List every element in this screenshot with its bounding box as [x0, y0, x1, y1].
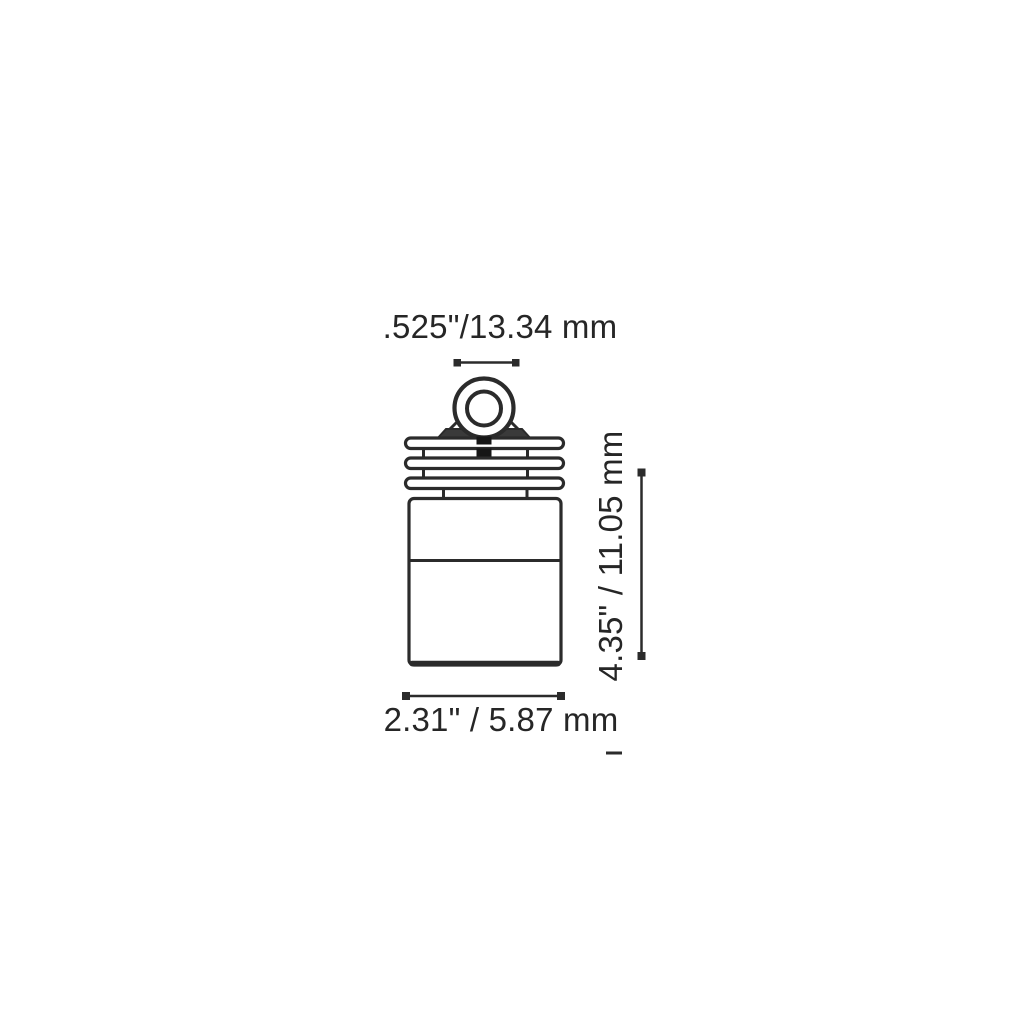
fixture-eyelet	[455, 379, 514, 438]
fixture-drawing	[406, 379, 564, 666]
heat-sink-fins	[406, 438, 564, 489]
heat-sink-spacers	[424, 446, 528, 500]
dimension-drawing	[0, 0, 1024, 1024]
eyelet-width-dimension-label: .525"/13.34 mm	[340, 308, 660, 346]
page-canvas: .525"/13.34 mm 4.35" / 11.05 mm 2.31" / …	[0, 0, 1024, 1024]
height-dimension-label: 4.35" / 11.05 mm	[592, 431, 630, 682]
height-dimension-line	[638, 469, 646, 661]
fixture-body	[409, 499, 561, 666]
body-width-dimension-line	[402, 692, 565, 700]
body-width-dimension-label: 2.31" / 5.87 mm	[341, 701, 661, 739]
eyelet-width-dimension-line	[454, 359, 520, 367]
